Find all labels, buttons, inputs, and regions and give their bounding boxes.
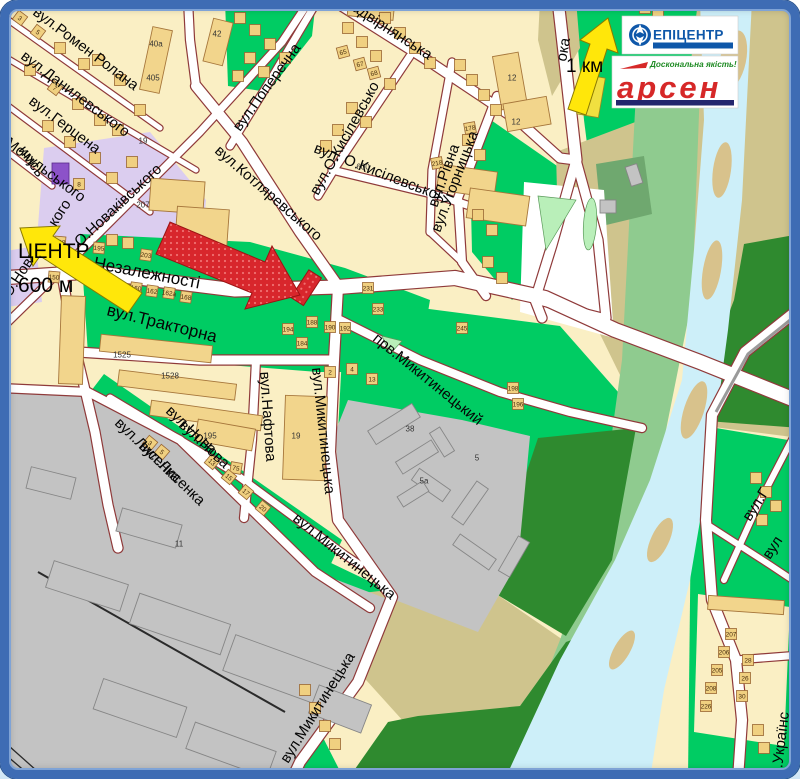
building-marker: [235, 13, 246, 24]
svg-text:190: 190: [325, 324, 336, 331]
building-marker: 65: [336, 45, 349, 58]
building-marker: [330, 739, 341, 750]
building-marker: [455, 60, 466, 71]
building-marker: [751, 473, 762, 484]
svg-text:1528: 1528: [161, 371, 179, 380]
building-marker: [265, 39, 276, 50]
svg-text:208: 208: [706, 685, 717, 692]
building-marker: 226: [701, 701, 712, 712]
building-marker: 207: [136, 200, 150, 209]
map-container: 40а40542207152515281919511385а5121219600…: [0, 0, 800, 779]
svg-text:207: 207: [726, 631, 737, 638]
building-marker: [233, 71, 244, 82]
svg-text:42: 42: [213, 29, 222, 38]
building-marker: 30: [737, 691, 748, 702]
center-label: ЦЕНТР: [18, 240, 90, 263]
svg-text:40а: 40а: [149, 39, 163, 48]
building-marker: 208: [706, 683, 717, 694]
building-marker: 4: [347, 364, 358, 375]
building-marker: [245, 53, 256, 64]
svg-text:207: 207: [136, 200, 150, 209]
epicentr-logo: ЕПІЦЕНТР: [622, 16, 738, 54]
building-marker: 11: [175, 539, 184, 548]
building-marker: [491, 105, 502, 116]
building-marker: [759, 743, 770, 754]
building-marker: 194: [283, 324, 294, 335]
building-marker: 68: [367, 66, 380, 79]
svg-text:206: 206: [719, 649, 730, 656]
building-marker: 26: [740, 673, 751, 684]
building-marker: [479, 90, 490, 101]
svg-text:19: 19: [139, 136, 148, 145]
building-marker: 190: [325, 322, 336, 333]
building-marker: [371, 51, 382, 62]
building-marker: 1528: [161, 371, 179, 380]
building-marker: [55, 43, 66, 54]
svg-text:245: 245: [457, 325, 468, 332]
building-marker: [357, 37, 368, 48]
building-marker: [123, 238, 134, 249]
epicentr-logo-bar: [653, 43, 733, 49]
building-marker: 233: [373, 304, 384, 315]
building-marker: 38: [406, 424, 415, 433]
building-marker: 207: [726, 629, 737, 640]
building-marker: [385, 79, 396, 90]
building-marker: [250, 25, 261, 36]
city-map-image: 40а40542207152515281919511385а5121219600…: [0, 0, 800, 779]
building-marker: 19: [292, 431, 301, 440]
svg-text:226: 226: [701, 703, 712, 710]
building-marker: 40а: [149, 39, 163, 48]
building-marker: [343, 23, 354, 34]
svg-text:4: 4: [350, 366, 354, 373]
building-marker: 196: [513, 399, 524, 410]
building-marker: 19: [139, 136, 148, 145]
svg-text:2: 2: [328, 369, 332, 376]
svg-text:5а: 5а: [420, 476, 429, 485]
building-marker: [467, 75, 478, 86]
svg-text:26: 26: [741, 675, 749, 682]
svg-text:192: 192: [340, 325, 351, 332]
building: [58, 296, 85, 385]
svg-text:5: 5: [475, 453, 480, 462]
svg-text:405: 405: [146, 73, 160, 82]
svg-text:19: 19: [292, 431, 301, 440]
building-marker: [483, 257, 494, 268]
building-marker: 5а: [420, 476, 429, 485]
north-distance: 1 км: [566, 56, 603, 77]
building-marker: 206: [719, 647, 730, 658]
building-marker: 188: [307, 317, 318, 328]
building-marker: [127, 157, 138, 168]
building-marker: [135, 105, 146, 116]
building-marker: [107, 235, 118, 246]
arsen-tagline: Доскональна якість!: [649, 60, 737, 69]
svg-text:188: 188: [307, 319, 318, 326]
svg-text:198: 198: [508, 385, 519, 392]
building-marker: [300, 685, 311, 696]
svg-text:231: 231: [363, 285, 374, 292]
building-marker: 205: [712, 665, 723, 676]
building-marker: [640, 3, 651, 14]
building-marker: 12: [512, 117, 521, 126]
building: [600, 200, 616, 213]
svg-text:11: 11: [175, 539, 184, 548]
svg-text:195: 195: [93, 245, 105, 253]
center-distance: 600 м: [18, 274, 73, 297]
building-marker: 28: [743, 655, 754, 666]
arsen-logo-text: арсен: [617, 70, 721, 105]
building-marker: 67: [353, 57, 366, 70]
svg-text:196: 196: [513, 401, 524, 408]
svg-text:184: 184: [297, 340, 308, 347]
building-marker: 184: [297, 338, 308, 349]
building-marker: 1525: [113, 350, 131, 359]
building-marker: 168: [180, 291, 193, 303]
building-marker: 231: [363, 283, 374, 294]
building-marker: [487, 225, 498, 236]
building-marker: 245: [457, 323, 468, 334]
building-marker: [107, 173, 118, 184]
building-marker: [497, 273, 508, 284]
svg-text:205: 205: [712, 667, 723, 674]
arsen-logo: Доскональна якість! арсен: [612, 56, 738, 108]
arsen-logo-bar: [616, 100, 734, 106]
building-marker: 13: [367, 374, 378, 385]
epicentr-compass-icon: [629, 24, 651, 46]
svg-text:1525: 1525: [113, 350, 131, 359]
svg-text:13: 13: [368, 376, 376, 383]
building-marker: 12: [508, 73, 517, 82]
building-marker: [473, 210, 484, 221]
building-marker: 198: [508, 383, 519, 394]
svg-text:194: 194: [283, 326, 294, 333]
svg-text:38: 38: [406, 424, 415, 433]
building-marker: 42: [213, 29, 222, 38]
svg-text:233: 233: [373, 306, 384, 313]
building-marker: [475, 150, 486, 161]
svg-text:30: 30: [738, 693, 746, 700]
building-marker: 162: [146, 285, 159, 297]
building-marker: 405: [146, 73, 160, 82]
building-marker: [753, 725, 764, 736]
epicentr-logo-text: ЕПІЦЕНТР: [653, 28, 724, 43]
svg-text:12: 12: [512, 117, 521, 126]
building-marker: [771, 501, 782, 512]
svg-text:12: 12: [508, 73, 517, 82]
building-marker: 192: [340, 323, 351, 334]
building-marker: [320, 721, 331, 732]
building-marker: 203: [140, 249, 153, 261]
svg-text:28: 28: [744, 657, 752, 664]
building-marker: 5: [475, 453, 480, 462]
